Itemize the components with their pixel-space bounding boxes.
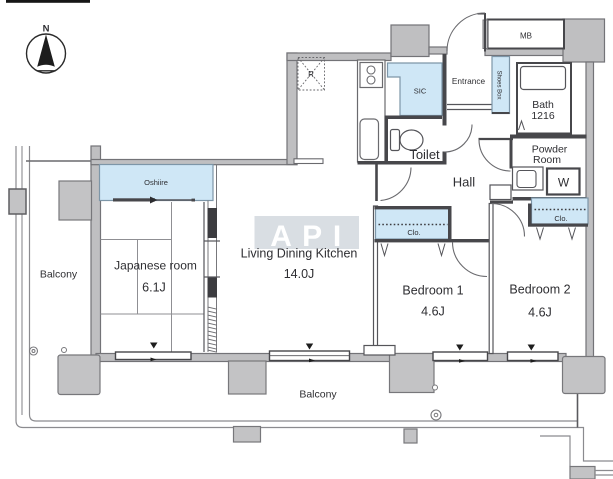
svg-text:4.6J: 4.6J — [421, 305, 445, 319]
svg-text:SIC: SIC — [414, 87, 427, 96]
svg-text:Bedroom 2: Bedroom 2 — [509, 283, 570, 297]
svg-text:Clo.: Clo. — [407, 228, 420, 237]
svg-text:Hall: Hall — [453, 175, 476, 190]
svg-text:Living Dining Kitchen: Living Dining Kitchen — [241, 247, 358, 261]
svg-text:Clo.: Clo. — [554, 214, 567, 223]
svg-text:Balcony: Balcony — [40, 269, 78, 281]
svg-text:Oshiire: Oshiire — [144, 178, 168, 187]
svg-text:Bedroom 1: Bedroom 1 — [402, 284, 463, 298]
svg-text:Toilet: Toilet — [409, 147, 440, 162]
svg-text:R: R — [308, 70, 314, 79]
svg-text:Japanese room: Japanese room — [114, 259, 197, 273]
svg-text:MB: MB — [520, 32, 532, 41]
svg-text:W: W — [558, 176, 570, 190]
svg-text:Entrance: Entrance — [452, 76, 486, 86]
svg-text:Balcony: Balcony — [299, 389, 337, 401]
svg-text:6.1J: 6.1J — [142, 281, 166, 295]
svg-text:N: N — [43, 24, 50, 35]
svg-text:Room: Room — [533, 154, 561, 166]
svg-text:1216: 1216 — [531, 110, 555, 122]
svg-text:Shoes Box: Shoes Box — [496, 70, 502, 99]
svg-text:4.6J: 4.6J — [528, 306, 552, 320]
svg-text:14.0J: 14.0J — [284, 267, 315, 281]
